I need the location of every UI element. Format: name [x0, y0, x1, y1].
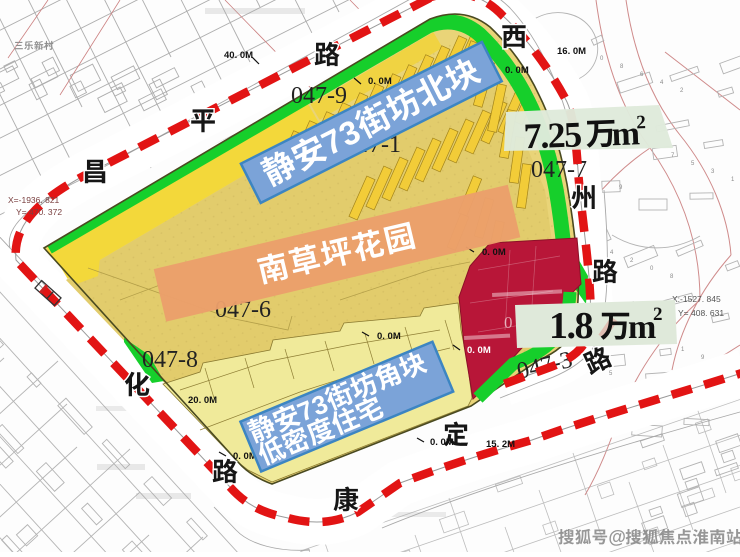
svg-text:047-8: 047-8 — [142, 347, 198, 373]
svg-text:2: 2 — [653, 304, 663, 325]
svg-text:Y= 470. 372: Y= 470. 372 — [16, 207, 62, 217]
svg-text:7.25: 7.25 — [523, 114, 582, 156]
svg-text:15. 2M: 15. 2M — [486, 439, 515, 450]
svg-text:40. 0M: 40. 0M — [224, 50, 253, 61]
svg-text:X=-1936. 821: X=-1936. 821 — [8, 195, 60, 205]
svg-text:047-9: 047-9 — [291, 83, 347, 109]
svg-text:0. 0M: 0. 0M — [377, 331, 401, 342]
svg-text:0. 0M: 0. 0M — [430, 437, 454, 448]
svg-text:2: 2 — [636, 112, 646, 133]
svg-text:0. 0M: 0. 0M — [368, 76, 392, 87]
svg-text:X:-1527. 845: X:-1527. 845 — [672, 294, 721, 304]
svg-text:@: @ — [608, 527, 626, 547]
svg-text:Y= 408. 631: Y= 408. 631 — [678, 308, 724, 318]
svg-text:20. 0M: 20. 0M — [188, 395, 217, 406]
svg-text:0. 0M: 0. 0M — [467, 345, 491, 356]
svg-text:0. 0M: 0. 0M — [482, 247, 506, 258]
svg-text:0. 0M: 0. 0M — [505, 65, 529, 76]
svg-text:1.8: 1.8 — [549, 305, 593, 347]
svg-text:16. 0M: 16. 0M — [557, 46, 586, 57]
svg-text:0: 0 — [504, 313, 513, 332]
